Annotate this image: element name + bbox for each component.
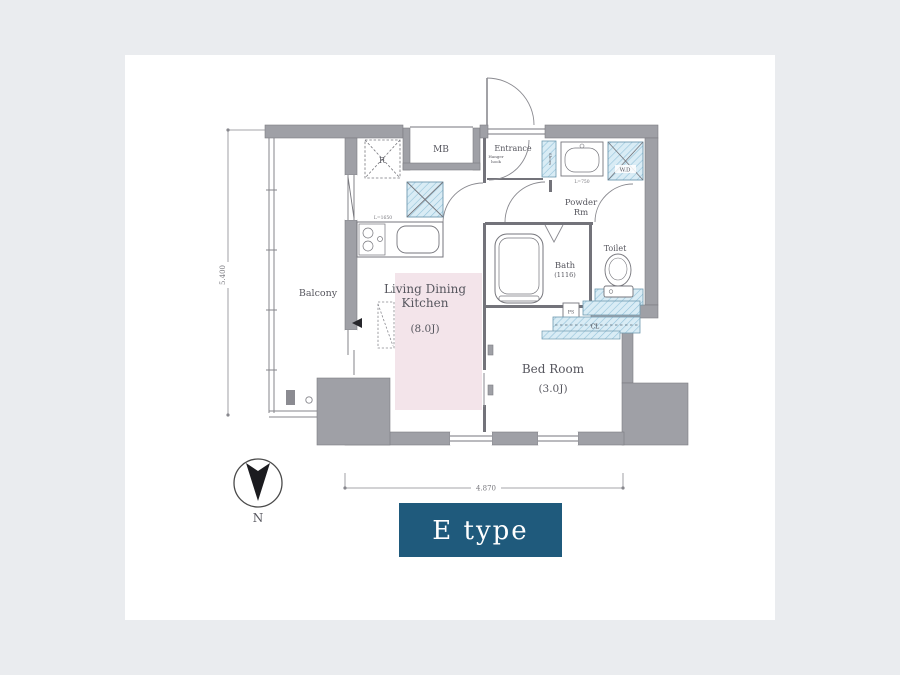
ldk-size-label: (8.0J) (410, 323, 439, 335)
vertical-dimension (226, 128, 265, 416)
pipe-space-label: PS (568, 310, 575, 316)
unit-type-label: E type (432, 516, 528, 546)
refrigerator-label: R (379, 156, 386, 165)
floorplan-card: R MB L=1650 (125, 55, 775, 620)
horizontal-dimension-label: 4.870 (476, 485, 496, 493)
balcony-drain (306, 397, 312, 403)
bedroom-label: Bed Room (522, 362, 585, 376)
balcony-label: Balcony (299, 288, 338, 299)
kitchen-length-label: L=1650 (374, 215, 392, 221)
meter-box-label: MB (433, 145, 449, 155)
ldk-label-line1: Living Dining (384, 282, 466, 296)
vertical-dimension-label: 5.400 (219, 265, 227, 285)
toilet-bowl (604, 254, 633, 297)
washbasin (561, 142, 603, 176)
north-label: N (253, 511, 264, 525)
floorplan-drawing: R MB L=1650 (125, 55, 775, 620)
toilet-label: Toilet (604, 244, 627, 253)
bedroom-size-label: (3.0J) (538, 383, 567, 395)
shoes-box-label: Shoes (548, 153, 553, 165)
washing-machine-space (407, 182, 443, 217)
kitchen-counter (357, 222, 443, 257)
washer-dryer-label: W.D (620, 168, 631, 174)
washer-dryer-space (608, 142, 643, 180)
balcony-unit-box (286, 390, 295, 405)
door-arcs (443, 78, 633, 242)
north-compass (234, 459, 282, 507)
washbasin-length-label: L=750 (574, 179, 589, 185)
entrance-note-line2: hook (491, 159, 501, 164)
bathtub (495, 234, 543, 303)
powder-room-label-line1: Powder (565, 198, 598, 208)
powder-room-label-line2: Rm (574, 208, 588, 218)
bath-label: Bath (555, 261, 576, 271)
entrance-label: Entrance (494, 144, 531, 153)
ldk-counter-dashed (378, 302, 394, 348)
ldk-label-line2: Kitchen (402, 296, 449, 310)
bath-size-label: (1116) (554, 271, 576, 279)
balcony-railing (266, 138, 317, 417)
closet-label: CL (591, 324, 600, 331)
page-background: R MB L=1650 (0, 0, 900, 675)
